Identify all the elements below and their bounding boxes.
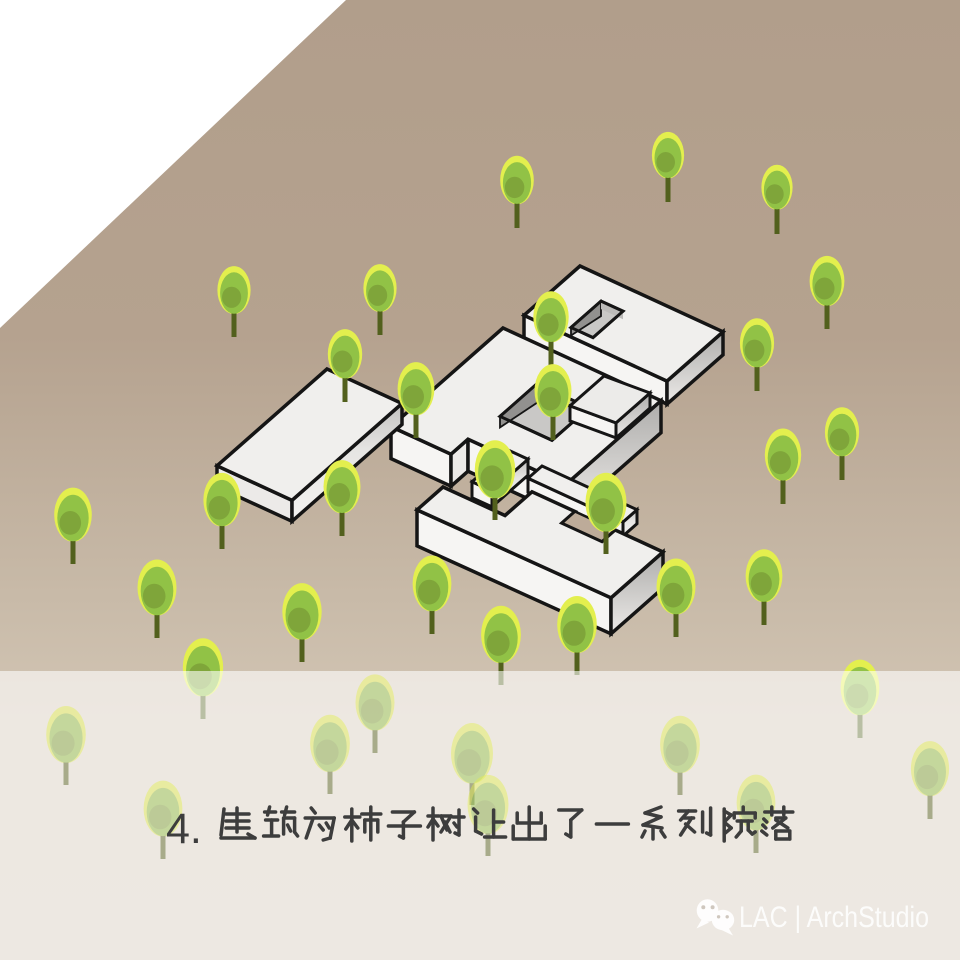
svg-text:4.: 4. bbox=[166, 805, 202, 853]
svg-text:LAC | ArchStudio: LAC | ArchStudio bbox=[739, 901, 929, 934]
